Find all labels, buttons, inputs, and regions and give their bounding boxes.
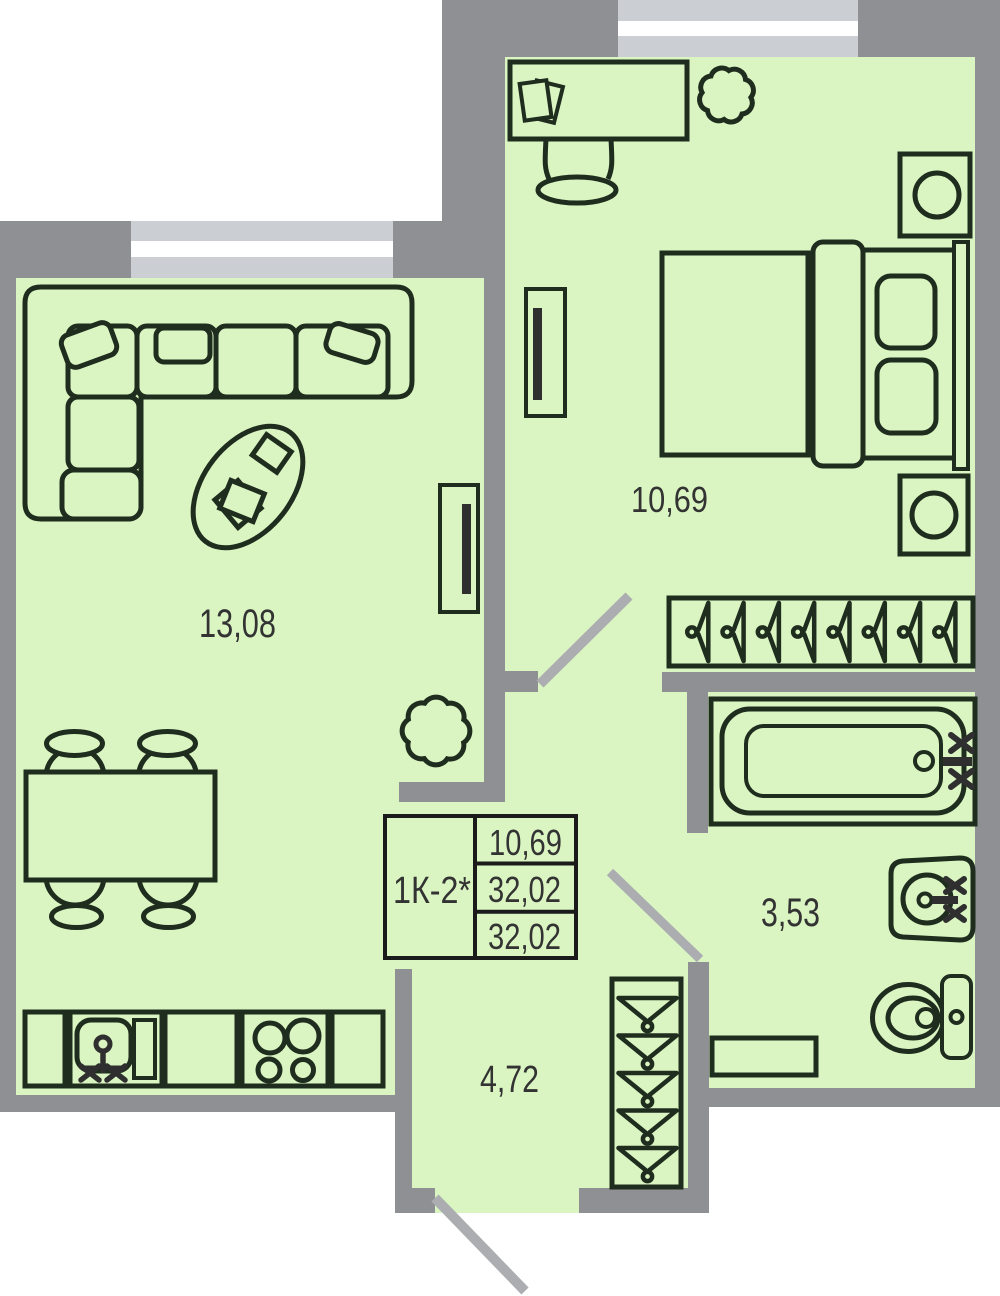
svg-text:3,53: 3,53: [761, 891, 820, 935]
svg-text:32,02: 32,02: [488, 916, 561, 957]
svg-text:10,69: 10,69: [631, 479, 708, 520]
svg-text:13,08: 13,08: [199, 602, 276, 646]
svg-text:4,72: 4,72: [480, 1059, 539, 1101]
svg-text:32,02: 32,02: [488, 869, 561, 910]
svg-text:1К-2*: 1К-2*: [393, 870, 471, 912]
svg-text:10,69: 10,69: [489, 822, 562, 863]
